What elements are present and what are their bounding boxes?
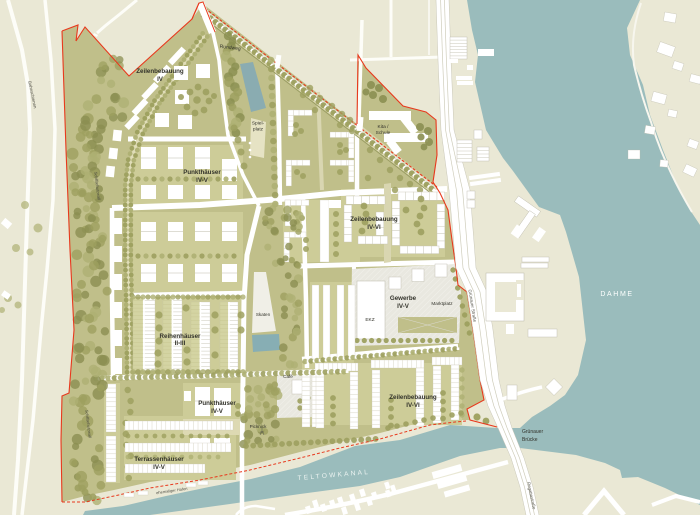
svg-text:Marktplatz: Marktplatz	[431, 301, 453, 306]
svg-text:Zeilenbebauung: Zeilenbebauung	[389, 394, 437, 401]
svg-text:Spiel-: Spiel-	[252, 121, 265, 127]
svg-text:Grünauer: Grünauer	[522, 429, 543, 435]
svg-text:Brücke: Brücke	[522, 437, 538, 443]
svg-text:IV-V: IV-V	[211, 408, 224, 415]
svg-text:IV-VI: IV-VI	[406, 402, 420, 409]
svg-text:Zeilenbebauung: Zeilenbebauung	[136, 68, 184, 75]
svg-text:Punkthäuser: Punkthäuser	[198, 400, 236, 407]
svg-text:IV-V: IV-V	[397, 303, 410, 310]
svg-text:II-III: II-III	[175, 340, 186, 347]
svg-text:Schule: Schule	[376, 130, 391, 136]
svg-text:IV-V: IV-V	[196, 177, 209, 184]
svg-text:Picknick: Picknick	[250, 424, 268, 429]
svg-text:platz: platz	[253, 127, 264, 133]
svg-text:DAHME: DAHME	[600, 291, 633, 298]
svg-text:IV: IV	[157, 76, 164, 83]
svg-text:Reihenhäuser: Reihenhäuser	[160, 333, 202, 340]
svg-text:EKZ: EKZ	[365, 317, 374, 323]
svg-text:Zeilenbebauung: Zeilenbebauung	[350, 216, 398, 223]
svg-text:Skaten: Skaten	[256, 312, 271, 317]
svg-text:Terrassenhäuser: Terrassenhäuser	[134, 456, 184, 463]
svg-text:IV-VI: IV-VI	[367, 224, 381, 231]
svg-text:Gewerbe: Gewerbe	[390, 295, 417, 302]
svg-text:Punkthäuser: Punkthäuser	[183, 169, 221, 176]
svg-text:IV-V: IV-V	[153, 464, 166, 471]
svg-text:Café: Café	[283, 374, 293, 379]
svg-text:Kita /: Kita /	[378, 124, 390, 130]
